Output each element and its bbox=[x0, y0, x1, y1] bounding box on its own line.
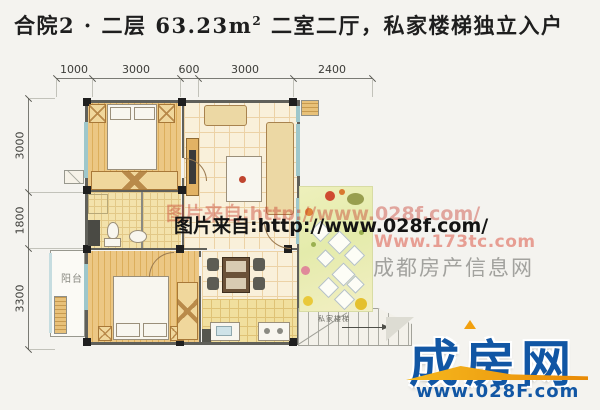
column bbox=[176, 245, 184, 253]
extension-line bbox=[92, 79, 93, 97]
ac-platform bbox=[64, 170, 84, 184]
dimension-line-top bbox=[56, 78, 372, 79]
title-subtext: 二室二厅，私家楼梯独立入户 bbox=[262, 13, 563, 38]
staircase-arrow bbox=[342, 327, 384, 328]
balcony-cabinet bbox=[54, 296, 67, 334]
column bbox=[83, 338, 91, 346]
extension-line bbox=[29, 349, 55, 350]
extension-line bbox=[372, 79, 373, 97]
wall-bedroom2-dining-stub bbox=[199, 251, 201, 257]
window-living1 bbox=[296, 124, 300, 176]
wall-bottom bbox=[85, 342, 300, 345]
extension-line bbox=[180, 79, 181, 97]
kitchen-sink bbox=[216, 326, 232, 336]
column bbox=[289, 338, 297, 346]
window-bedroom1 bbox=[84, 122, 88, 178]
watermark-site-url: Www.173tc.com bbox=[374, 232, 536, 252]
dim-left-3000: 3000 bbox=[14, 129, 27, 163]
staircase-label: 私家楼梯 bbox=[318, 314, 350, 324]
building-block bbox=[316, 249, 334, 267]
building-block bbox=[344, 245, 365, 266]
sink-basin bbox=[129, 230, 147, 243]
wall-top bbox=[85, 100, 300, 103]
place-setting bbox=[226, 278, 246, 289]
extension-line bbox=[29, 248, 83, 249]
logo-accent-icon bbox=[464, 320, 476, 329]
page-title: 合院2 · 二层 63.23m2 二室二厅，私家楼梯独立入户 bbox=[14, 10, 594, 40]
balcony-window bbox=[49, 253, 52, 333]
watermark-site-name: 成都房产信息网 bbox=[373, 252, 534, 282]
column bbox=[178, 98, 186, 106]
table-decor bbox=[239, 176, 246, 183]
wall-bedroom2-dining bbox=[199, 276, 201, 345]
dining-chair bbox=[253, 277, 265, 290]
nightstand bbox=[89, 104, 106, 123]
pillow bbox=[110, 107, 131, 120]
wall-mid-horizontal bbox=[85, 248, 207, 250]
pillow bbox=[134, 107, 155, 120]
column bbox=[83, 186, 91, 194]
washing-machine bbox=[88, 220, 100, 246]
title-superscript: 2 bbox=[252, 14, 262, 28]
toilet-bowl bbox=[107, 222, 119, 239]
flower-orange bbox=[339, 189, 345, 195]
extension-line bbox=[198, 79, 199, 97]
extension-line bbox=[56, 79, 57, 97]
balcony-label: 阳台 bbox=[61, 270, 83, 285]
logo-site-url: www.028F.com bbox=[416, 381, 579, 402]
stove-burner bbox=[277, 328, 283, 334]
dim-top-3000b: 3000 bbox=[228, 63, 262, 76]
dining-chair bbox=[253, 258, 265, 271]
entry-cabinet bbox=[301, 100, 319, 116]
dim-top-2400: 2400 bbox=[315, 63, 349, 76]
wardrobe bbox=[177, 282, 198, 340]
dim-top-1000: 1000 bbox=[57, 63, 91, 76]
building-block bbox=[334, 289, 355, 310]
dim-top-3000a: 3000 bbox=[119, 63, 153, 76]
extension-line bbox=[29, 98, 55, 99]
dining-chair bbox=[207, 258, 219, 271]
kitchen-cabinet bbox=[202, 329, 211, 342]
wall-bedroom1-bath bbox=[85, 190, 184, 192]
column bbox=[289, 98, 297, 106]
flower-pink bbox=[301, 266, 310, 275]
toilet-tank bbox=[104, 238, 121, 247]
extension-line bbox=[29, 192, 83, 193]
extension-line bbox=[293, 79, 294, 97]
place-setting bbox=[226, 261, 246, 272]
column bbox=[83, 245, 91, 253]
column bbox=[178, 186, 186, 194]
shrub-green bbox=[311, 242, 316, 247]
kitchen-stove bbox=[258, 322, 290, 341]
shower-tray bbox=[88, 194, 108, 214]
sofa-loveseat bbox=[204, 105, 247, 126]
dim-top-600: 600 bbox=[172, 63, 206, 76]
wall-bedroom1-living bbox=[182, 100, 184, 158]
wardrobe bbox=[91, 171, 178, 190]
pillow bbox=[116, 323, 140, 337]
dimension-line-left bbox=[28, 98, 29, 350]
title-text: 合院2 · 二层 63.23m bbox=[14, 13, 252, 38]
nightstand bbox=[98, 326, 112, 341]
dim-left-3300: 3300 bbox=[14, 282, 27, 316]
pillow bbox=[143, 323, 167, 337]
flower-yellow bbox=[355, 298, 367, 310]
stove-burner bbox=[264, 328, 270, 334]
nightstand bbox=[158, 104, 175, 123]
window-entry bbox=[296, 106, 300, 122]
dining-chair bbox=[207, 277, 219, 290]
building-block bbox=[318, 277, 339, 298]
flower-yellow bbox=[303, 296, 313, 306]
floorplan-page: 合院2 · 二层 63.23m2 二室二厅，私家楼梯独立入户 1000 3000… bbox=[0, 0, 600, 410]
window-bedroom2 bbox=[84, 264, 88, 310]
dim-left-1800: 1800 bbox=[14, 204, 27, 238]
